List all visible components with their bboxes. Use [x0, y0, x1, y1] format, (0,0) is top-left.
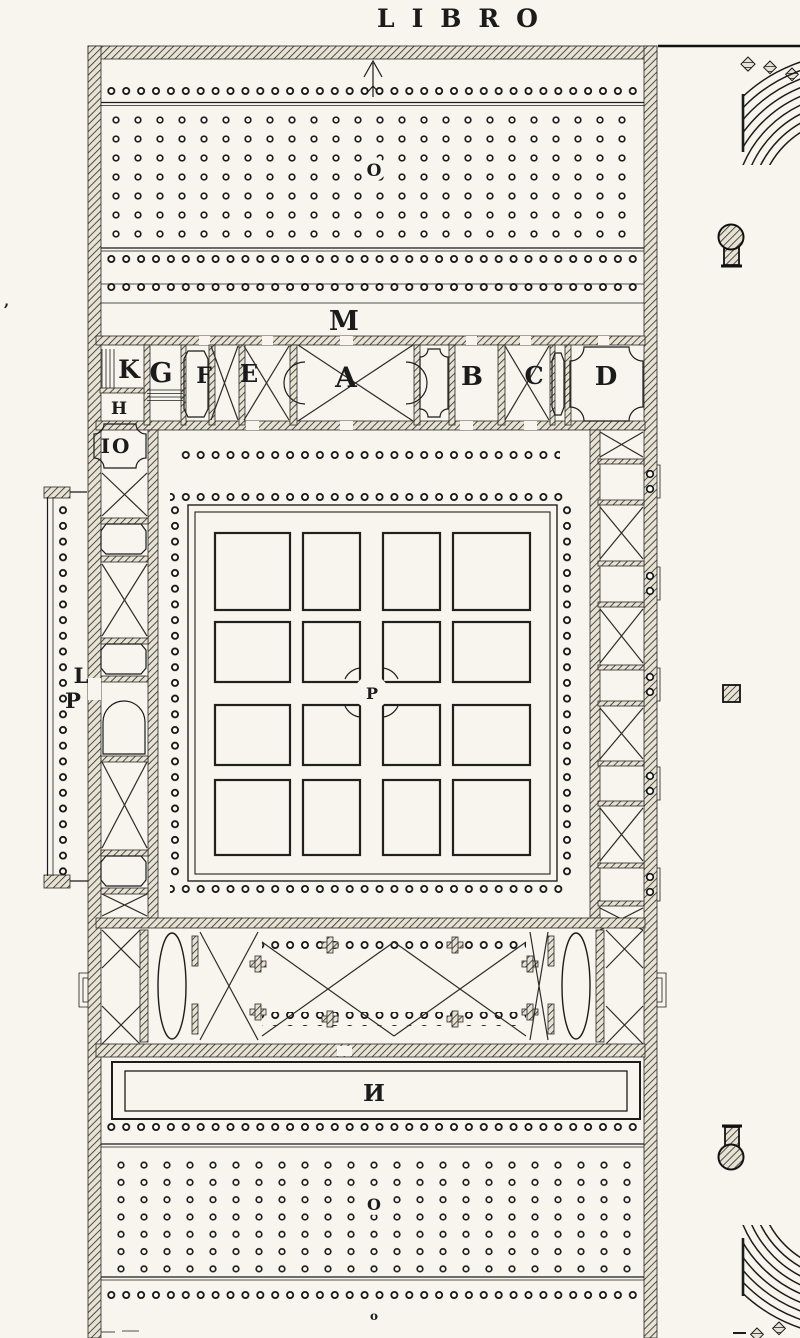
colonnade-row [104, 280, 640, 294]
loggia-m: M [329, 306, 359, 337]
page-title: LIBRO [377, 4, 555, 33]
label-o-edge: o [370, 1309, 378, 1323]
label-o-top: O [367, 161, 382, 181]
tree-grid [108, 1157, 640, 1275]
margin-comma-mark: , [4, 292, 9, 310]
gallery-columns-row [262, 938, 526, 952]
portico-passage [88, 678, 101, 700]
label-io: IO [101, 434, 132, 458]
label-h: H [111, 399, 127, 419]
colonnade-row [104, 1121, 642, 1134]
engraved-villa-plan: LIBRO , O M [0, 0, 800, 1338]
colonnade-column [168, 506, 182, 882]
colonnade-row [104, 84, 640, 98]
label-p-garden: P [366, 684, 378, 703]
label-l: L [74, 663, 89, 688]
label-o-bottom: O [367, 1195, 381, 1214]
gallery-columns-row [262, 1012, 526, 1026]
label-b: B [461, 362, 483, 392]
colonnade-row [104, 252, 640, 266]
book-page: LIBRO , O M [0, 0, 800, 1338]
label-m: M [329, 306, 359, 337]
label-a: A [334, 361, 358, 394]
pier-fragment-mid [723, 685, 740, 702]
colonnade-column [560, 506, 574, 882]
label-k: K [118, 355, 141, 384]
label-p-portico: P [65, 688, 81, 713]
colonnade-row [104, 1288, 642, 1302]
label-e: E [240, 359, 258, 388]
label-f: F [196, 363, 212, 389]
colonnade-row [170, 490, 566, 504]
colonnade-row [170, 882, 566, 896]
label-n: И [363, 1080, 385, 1107]
label-g: G [149, 358, 172, 389]
label-c: C [524, 361, 543, 390]
label-d: D [595, 362, 618, 392]
colonnade-row [178, 449, 560, 463]
